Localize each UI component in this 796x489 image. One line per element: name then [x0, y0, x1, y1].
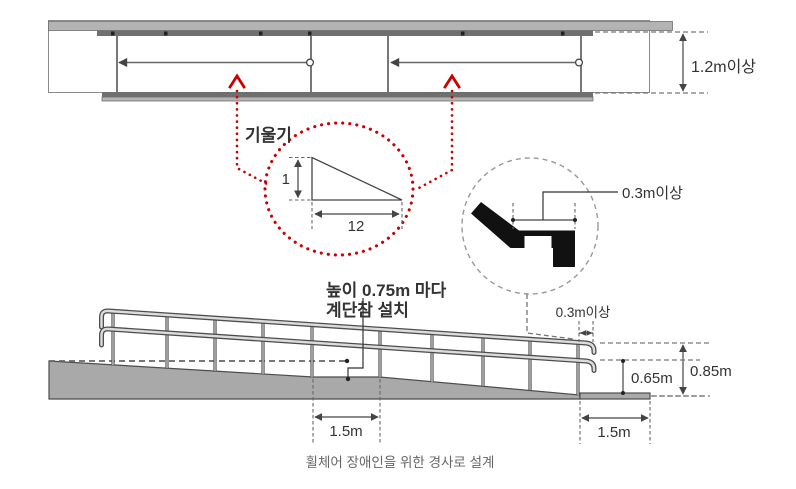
plan-bottom-handrail	[102, 92, 593, 97]
landing-note-line1: 높이 0.75m 마다	[326, 281, 447, 300]
plan-bottom-wall	[102, 97, 593, 101]
slope-title: 기울기	[245, 126, 292, 145]
ramp-body	[49, 361, 580, 399]
plan-width-label: 1.2m이상	[691, 58, 756, 76]
diagram-svg: 1.2m이상 기울기 1 12	[0, 0, 796, 489]
lower-rail-height-label: 0.65m	[631, 370, 673, 387]
plan-top-handrail	[97, 31, 593, 37]
rail-extension-dimension: 0.3m이상	[556, 305, 611, 342]
detail-circle	[462, 158, 598, 294]
end-landing-dimension: 1.5m	[580, 401, 650, 444]
ramp-design-diagram: 1.2m이상 기울기 1 12	[0, 0, 796, 489]
ground-landing	[580, 393, 650, 399]
plan-top-wall	[49, 22, 673, 31]
plan-view: 1.2m이상	[49, 21, 757, 102]
callout-dotted-line	[419, 91, 452, 188]
landing-note-line2: 계단참 설치	[326, 300, 409, 320]
rail-extension-label: 0.3m이상	[556, 305, 611, 320]
mid-landing-label: 1.5m	[329, 423, 362, 440]
handrail-end-section	[471, 202, 575, 267]
elevation-view: 높이 0.75m 마다 계단참 설치 0.3m이상 0.85m 0.65m	[49, 281, 732, 444]
slope-run-label: 12	[348, 218, 365, 235]
diagram-caption: 휠체어 장애인을 위한 경사로 설계	[306, 455, 495, 470]
detail-extension-label: 0.3m이상	[622, 185, 683, 202]
end-landing-label: 1.5m	[597, 424, 630, 441]
slope-callout: 기울기 1 12	[230, 76, 459, 255]
handrail-slot	[525, 236, 552, 248]
slope-triangle: 1 12	[282, 158, 402, 236]
lower-rail-height-dimension: 0.65m	[600, 359, 700, 395]
upper-rail-height-label: 0.85m	[690, 363, 732, 380]
detail-extension-dimension: 0.3m이상	[511, 185, 683, 229]
slope-rise-label: 1	[282, 171, 290, 188]
